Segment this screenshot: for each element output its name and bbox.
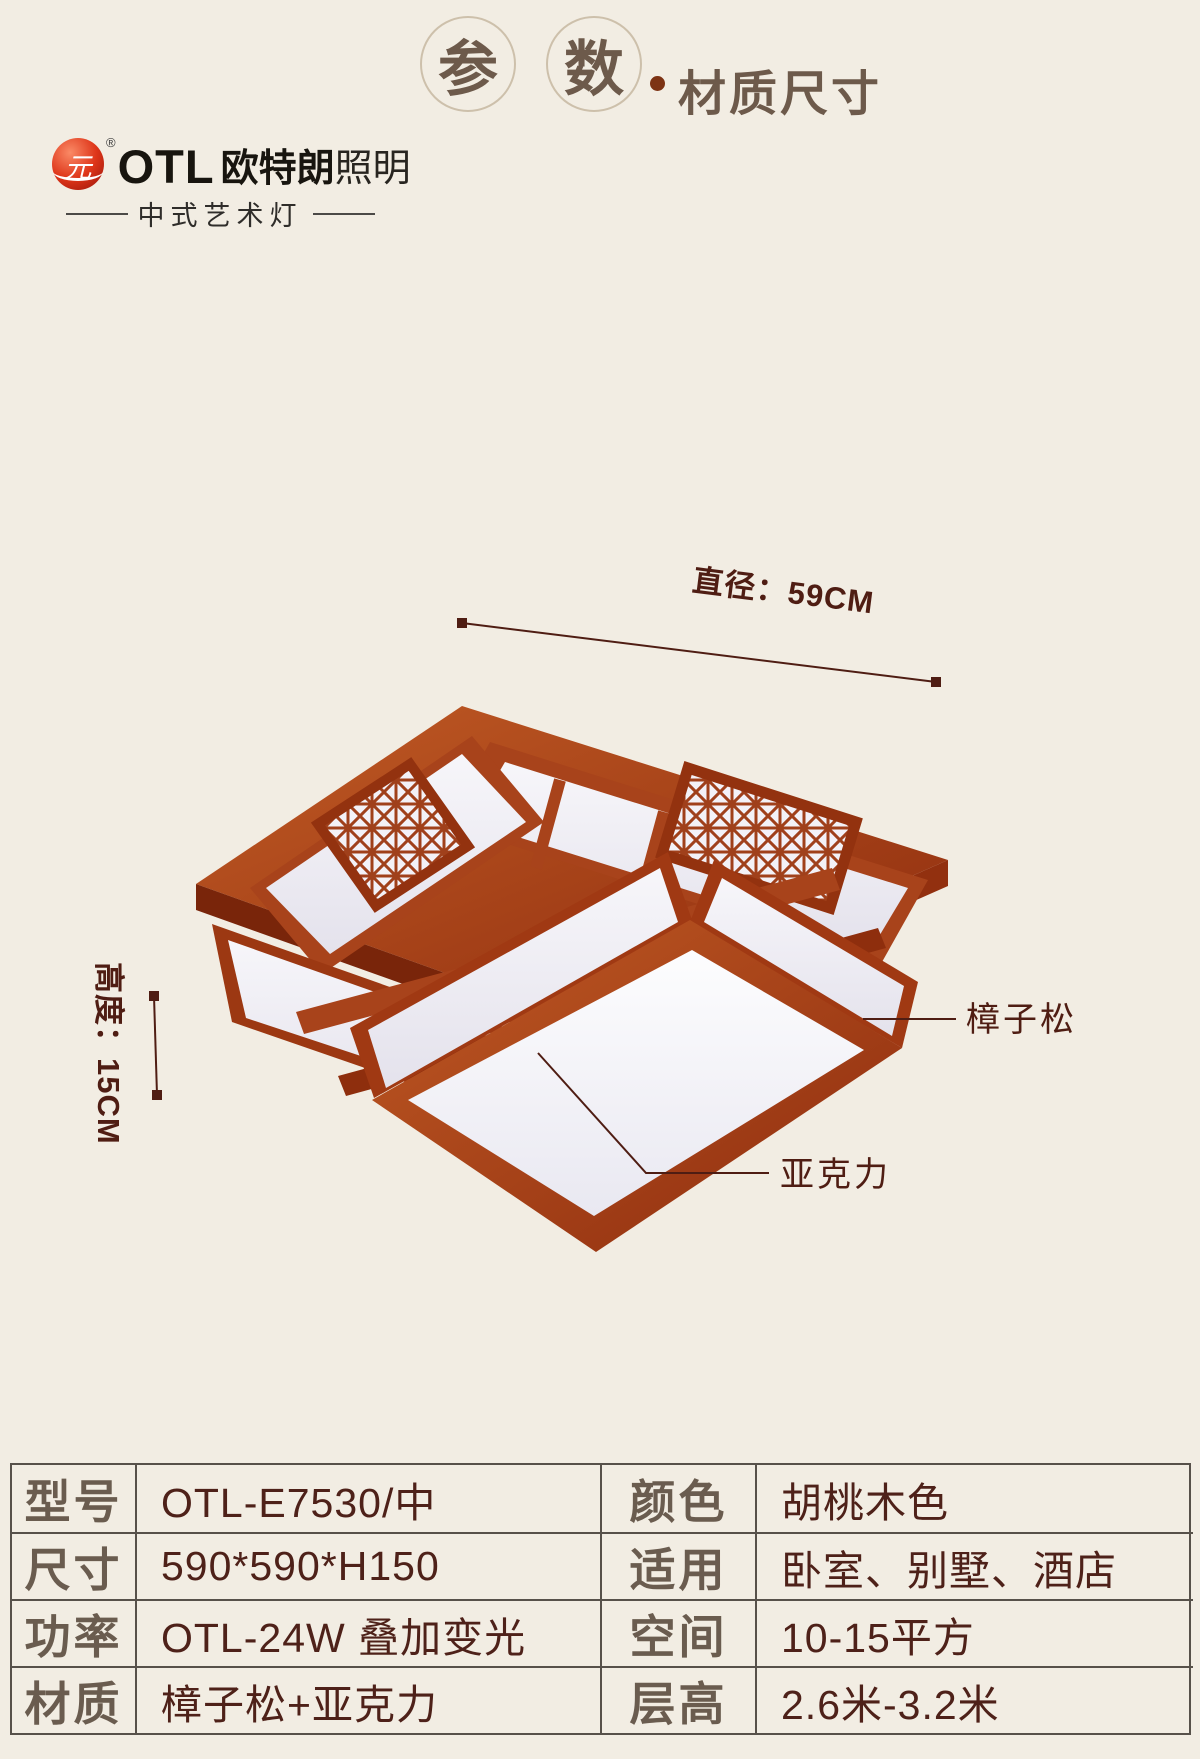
spec-value-color: 胡桃木色 bbox=[755, 1465, 1193, 1532]
spec-label-space: 空间 bbox=[600, 1599, 755, 1666]
callout-acrylic-label: 亚克力 bbox=[780, 1156, 891, 1194]
dimension-endpoint-square bbox=[152, 1090, 162, 1100]
diameter-dimension bbox=[457, 618, 941, 687]
spec-value-usage: 卧室、别墅、酒店 bbox=[755, 1532, 1193, 1599]
spec-label-ceiling-height: 层高 bbox=[600, 1666, 755, 1733]
spec-label-color: 颜色 bbox=[600, 1465, 755, 1532]
diameter-label: 直径：59CM bbox=[690, 563, 876, 621]
dimension-endpoint-square bbox=[457, 618, 467, 628]
dimension-endpoint-square bbox=[931, 677, 941, 687]
product-spec-page: 参 数 材质尺寸 元 ® OTL 欧特朗 照明 中式艺术灯 bbox=[0, 0, 1200, 1759]
height-dimension bbox=[149, 991, 162, 1100]
spec-label-material: 材质 bbox=[12, 1666, 135, 1733]
spec-value-size: 590*590*H150 bbox=[135, 1532, 600, 1599]
spec-value-ceiling-height: 2.6米-3.2米 bbox=[755, 1666, 1193, 1733]
spec-value-power: OTL-24W 叠加变光 bbox=[135, 1599, 600, 1666]
spec-label-usage: 适用 bbox=[600, 1532, 755, 1599]
spec-label-model: 型号 bbox=[12, 1465, 135, 1532]
spec-value-space: 10-15平方 bbox=[755, 1599, 1193, 1666]
callout-wood-label: 樟子松 bbox=[966, 1001, 1077, 1039]
spec-value-model: OTL-E7530/中 bbox=[135, 1465, 600, 1532]
dimension-endpoint-square bbox=[149, 991, 159, 1001]
spec-value-material: 樟子松+亚克力 bbox=[135, 1666, 600, 1733]
spec-table: 型号 OTL-E7530/中 颜色 胡桃木色 尺寸 590*590*H150 适… bbox=[10, 1463, 1191, 1735]
height-label: 高度：15CM bbox=[91, 962, 126, 1145]
spec-label-size: 尺寸 bbox=[12, 1532, 135, 1599]
spec-label-power: 功率 bbox=[12, 1599, 135, 1666]
